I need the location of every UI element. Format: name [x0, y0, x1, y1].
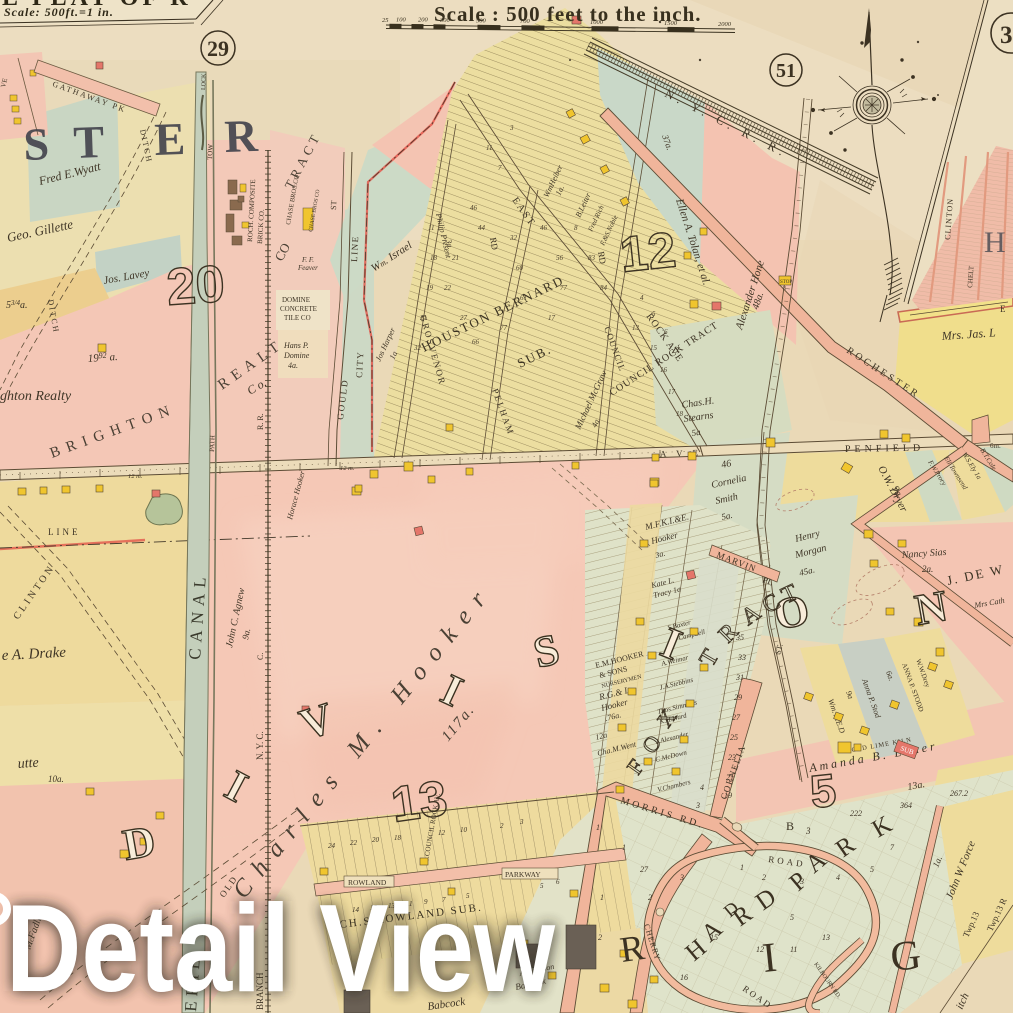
svg-text:700: 700: [520, 18, 531, 25]
svg-text:PARKWAY: PARKWAY: [505, 870, 541, 879]
svg-text:R: R: [224, 110, 260, 162]
svg-text:DOMINE: DOMINE: [282, 296, 310, 304]
svg-text:2: 2: [648, 893, 652, 902]
svg-text:8: 8: [574, 224, 578, 232]
svg-text:27: 27: [460, 314, 468, 322]
svg-text:21: 21: [452, 254, 459, 262]
svg-text:PENFIELD: PENFIELD: [845, 443, 924, 455]
svg-text:61: 61: [520, 294, 527, 302]
svg-text:300: 300: [439, 17, 451, 24]
svg-text:3: 3: [695, 801, 700, 810]
svg-text:66: 66: [472, 338, 480, 346]
svg-text:3: 3: [805, 826, 811, 836]
svg-text:S: S: [23, 118, 50, 170]
svg-text:77: 77: [560, 284, 568, 292]
svg-text:1: 1: [600, 893, 604, 902]
svg-text:24: 24: [328, 842, 336, 850]
svg-text:utte: utte: [17, 756, 39, 772]
svg-text:Feaver: Feaver: [297, 264, 318, 272]
svg-text:5: 5: [808, 764, 839, 818]
svg-text:F. F.: F. F.: [301, 256, 314, 264]
svg-text:19: 19: [724, 791, 732, 800]
svg-text:16: 16: [660, 366, 668, 374]
svg-text:1500: 1500: [664, 20, 678, 27]
svg-text:2a.: 2a.: [922, 564, 933, 574]
svg-text:13: 13: [388, 770, 451, 833]
svg-text:6m.: 6m.: [990, 442, 1001, 450]
svg-text:2: 2: [762, 873, 766, 882]
svg-text:29: 29: [734, 693, 742, 702]
svg-text:2: 2: [500, 822, 504, 830]
svg-text:3: 3: [519, 818, 524, 826]
svg-text:11: 11: [790, 945, 797, 954]
svg-text:32: 32: [509, 234, 518, 242]
svg-text:E: E: [154, 113, 186, 165]
svg-text:Detail View: Detail View: [6, 880, 555, 1013]
svg-text:ghton Realty: ghton Realty: [0, 389, 72, 404]
svg-text:3: 3: [679, 873, 684, 882]
svg-text:10a.: 10a.: [48, 774, 64, 784]
svg-text:3: 3: [509, 124, 514, 132]
svg-text:1: 1: [740, 863, 744, 872]
svg-text:Hans P.: Hans P.: [283, 341, 309, 350]
svg-text:6: 6: [556, 878, 560, 886]
svg-text:TOW: TOW: [206, 144, 215, 160]
svg-text:19: 19: [426, 284, 434, 292]
svg-text:LOCK: LOCK: [201, 73, 208, 90]
svg-text:1000: 1000: [590, 19, 604, 26]
svg-text:2000: 2000: [718, 21, 732, 28]
svg-text:12 m.: 12 m.: [340, 465, 355, 472]
svg-text:12: 12: [617, 221, 678, 283]
svg-text:E: E: [1000, 304, 1006, 314]
svg-text:STOP: STOP: [780, 280, 792, 285]
svg-text:13: 13: [632, 324, 640, 332]
svg-text:e A. Drake: e A. Drake: [1, 645, 66, 664]
svg-text:TILE CO: TILE CO: [284, 314, 311, 322]
svg-text:4: 4: [836, 873, 840, 882]
svg-text:Domine: Domine: [283, 351, 310, 360]
svg-text:CITY: CITY: [354, 351, 365, 378]
svg-text:21: 21: [420, 314, 427, 322]
svg-text:12 m.: 12 m.: [128, 473, 143, 480]
svg-text:G: G: [888, 932, 923, 981]
svg-text:18: 18: [430, 254, 438, 262]
svg-text:Scale : 500 feet to the i: Scale : 500 feet to the inch.: [434, 2, 702, 26]
svg-text:31: 31: [735, 673, 744, 682]
svg-text:3: 3: [1000, 22, 1013, 49]
svg-text:22: 22: [350, 839, 358, 847]
svg-text:222: 222: [850, 809, 862, 818]
svg-text:N. Y. C.: N. Y. C.: [255, 731, 265, 760]
svg-text:CONCRETE: CONCRETE: [280, 305, 317, 313]
svg-text:22: 22: [444, 284, 452, 292]
svg-text:27: 27: [732, 713, 741, 722]
svg-text:27: 27: [640, 865, 649, 874]
svg-text:44: 44: [478, 224, 486, 232]
svg-text:46: 46: [540, 224, 548, 232]
svg-text:500: 500: [476, 18, 487, 25]
svg-text:29: 29: [207, 36, 229, 61]
svg-text:B: B: [786, 819, 794, 833]
svg-text:20: 20: [372, 836, 380, 844]
svg-text:11: 11: [428, 224, 434, 232]
svg-text:23: 23: [728, 753, 736, 762]
svg-text:83: 83: [588, 254, 596, 262]
svg-text:H: H: [984, 226, 1006, 259]
svg-text:3: 3: [783, 286, 786, 292]
svg-text:21: 21: [726, 773, 734, 782]
svg-text:33: 33: [737, 653, 746, 662]
svg-text:17: 17: [668, 388, 676, 396]
svg-text:6: 6: [664, 328, 668, 336]
svg-text:R. R.: R. R.: [256, 413, 265, 430]
svg-text:13: 13: [822, 933, 830, 942]
svg-text:4a.: 4a.: [288, 361, 298, 370]
svg-text:7: 7: [498, 164, 502, 172]
svg-text:T: T: [73, 116, 105, 168]
svg-text:LINE: LINE: [349, 235, 360, 262]
svg-text:18: 18: [676, 410, 684, 418]
svg-text:C.: C.: [256, 653, 265, 660]
svg-text:18: 18: [394, 834, 402, 842]
svg-text:20: 20: [165, 255, 227, 317]
svg-text:51: 51: [776, 60, 796, 82]
svg-text:7: 7: [676, 346, 680, 354]
svg-text:25: 25: [730, 733, 738, 742]
svg-text:4: 4: [700, 783, 704, 792]
svg-text:Scale: 500ft.=1 in.: Scale: 500ft.=1 in.: [4, 5, 114, 19]
svg-text:PATH: PATH: [208, 435, 217, 452]
svg-text:60: 60: [516, 264, 524, 272]
svg-text:46: 46: [470, 204, 478, 212]
svg-text:5: 5: [652, 310, 656, 318]
svg-text:4: 4: [640, 294, 644, 302]
svg-text:17: 17: [548, 314, 556, 322]
svg-text:12: 12: [438, 829, 446, 837]
svg-text:15: 15: [650, 344, 658, 352]
svg-text:77: 77: [500, 324, 508, 332]
svg-text:ST: ST: [329, 200, 338, 210]
svg-text:LINE: LINE: [48, 527, 81, 537]
svg-text:CHELT: CHELT: [966, 265, 976, 288]
svg-text:5: 5: [790, 913, 794, 922]
svg-text:200: 200: [418, 17, 429, 24]
svg-text:364: 364: [899, 801, 912, 810]
svg-text:1: 1: [622, 843, 626, 852]
svg-text:56: 56: [556, 254, 564, 262]
svg-text:10: 10: [460, 826, 468, 834]
svg-text:11: 11: [486, 144, 492, 152]
svg-text:25: 25: [382, 17, 389, 24]
svg-text:5: 5: [870, 865, 874, 874]
svg-text:1: 1: [596, 823, 600, 832]
svg-text:16: 16: [680, 973, 688, 982]
svg-text:84: 84: [600, 284, 608, 292]
svg-text:267.2: 267.2: [950, 789, 968, 798]
svg-text:32: 32: [413, 344, 422, 352]
svg-text:100: 100: [396, 17, 407, 24]
svg-text:2: 2: [598, 933, 602, 942]
